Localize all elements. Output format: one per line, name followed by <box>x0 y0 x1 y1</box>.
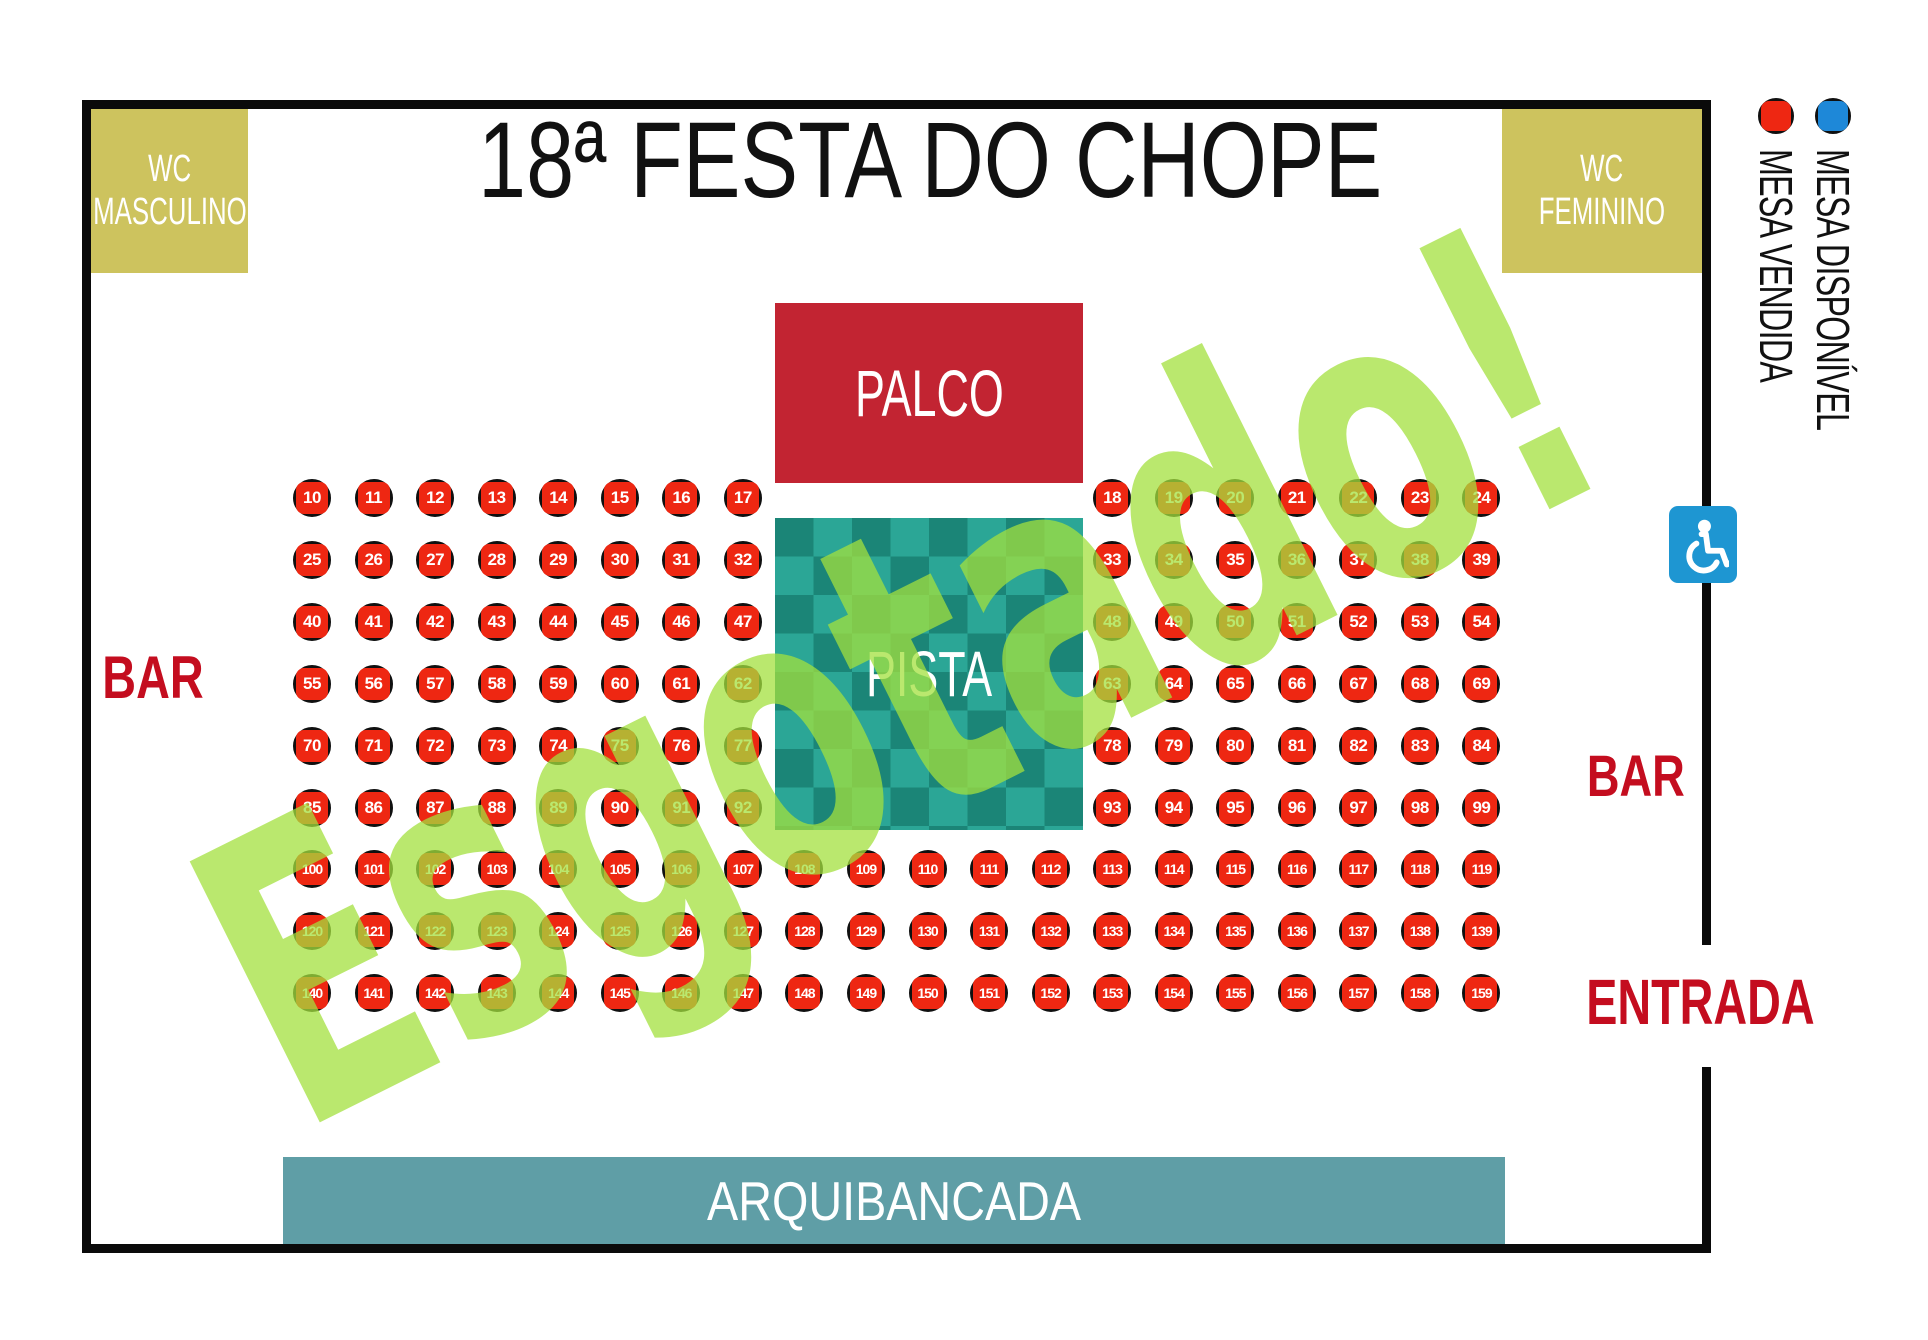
table-seat[interactable]: 132 <box>1031 911 1071 951</box>
table-seat[interactable]: 154 <box>1154 973 1194 1013</box>
table-seat[interactable]: 44 <box>538 602 578 642</box>
table-seat[interactable]: 102 <box>415 849 455 889</box>
table-seat[interactable]: 50 <box>1215 602 1255 642</box>
table-top: 70 <box>296 730 328 762</box>
table-seat[interactable]: 15 <box>600 478 640 518</box>
table-top: 99 <box>1465 792 1497 824</box>
table-top: 112 <box>1035 853 1067 885</box>
table-seat[interactable]: 87 <box>415 788 455 828</box>
wc-feminino-area: WC FEMININO <box>1502 109 1702 273</box>
table-seat[interactable]: 130 <box>908 911 948 951</box>
table-seat[interactable]: 74 <box>538 726 578 766</box>
table-top: 147 <box>727 977 759 1009</box>
table-seat[interactable]: 73 <box>477 726 517 766</box>
table-top <box>1761 101 1791 131</box>
wc-label: WC <box>148 148 191 191</box>
table-top: 71 <box>358 730 390 762</box>
table-seat[interactable]: 31 <box>661 540 701 580</box>
table-top: 145 <box>604 977 636 1009</box>
table-seat[interactable]: 14 <box>538 478 578 518</box>
table-top: 39 <box>1465 544 1497 576</box>
table-seat[interactable]: 54 <box>1461 602 1501 642</box>
table-top: 33 <box>1096 544 1128 576</box>
table-seat[interactable]: 126 <box>661 911 701 951</box>
table-top: 156 <box>1281 977 1313 1009</box>
table-top: 59 <box>542 668 574 700</box>
table-seat[interactable]: 109 <box>846 849 886 889</box>
table-top: 92 <box>727 792 759 824</box>
table-seat[interactable]: 64 <box>1154 664 1194 704</box>
table-top: 117 <box>1342 853 1374 885</box>
table-seat[interactable]: 149 <box>846 973 886 1013</box>
palco-stage-area: PALCO <box>775 303 1083 483</box>
table-seat[interactable]: 112 <box>1031 849 1071 889</box>
table-top: 135 <box>1219 915 1251 947</box>
table-top: 29 <box>542 544 574 576</box>
wc-feminino-label: FEMININO <box>1539 191 1665 234</box>
table-top: 157 <box>1342 977 1374 1009</box>
table-top: 72 <box>419 730 451 762</box>
table-seat[interactable]: 78 <box>1092 726 1132 766</box>
table-top: 37 <box>1342 544 1374 576</box>
table-seat[interactable]: 121 <box>354 911 394 951</box>
table-seat[interactable]: 46 <box>661 602 701 642</box>
table-top: 87 <box>419 792 451 824</box>
table-seat[interactable]: 155 <box>1215 973 1255 1013</box>
table-seat[interactable]: 61 <box>661 664 701 704</box>
table-top: 20 <box>1219 482 1251 514</box>
table-top: 83 <box>1404 730 1436 762</box>
table-seat[interactable]: 133 <box>1092 911 1132 951</box>
table-seat[interactable]: 158 <box>1400 973 1440 1013</box>
table-seat[interactable]: 25 <box>292 540 332 580</box>
table-seat[interactable]: 63 <box>1092 664 1132 704</box>
table-top: 53 <box>1404 606 1436 638</box>
table-seat[interactable]: 72 <box>415 726 455 766</box>
table-seat[interactable]: 10 <box>292 478 332 518</box>
table-top: 158 <box>1404 977 1436 1009</box>
table-seat[interactable]: 84 <box>1461 726 1501 766</box>
table-top: 24 <box>1465 482 1497 514</box>
table-seat[interactable]: 77 <box>723 726 763 766</box>
table-seat[interactable]: 105 <box>600 849 640 889</box>
palco-label: PALCO <box>855 355 1004 431</box>
table-seat[interactable]: 35 <box>1215 540 1255 580</box>
table-seat[interactable]: 16 <box>661 478 701 518</box>
table-top: 43 <box>481 606 513 638</box>
table-top: 148 <box>788 977 820 1009</box>
table-seat[interactable]: 95 <box>1215 788 1255 828</box>
table-top: 15 <box>604 482 636 514</box>
table-top: 12 <box>419 482 451 514</box>
table-seat[interactable]: 57 <box>415 664 455 704</box>
table-top: 118 <box>1404 853 1436 885</box>
table-seat[interactable]: 157 <box>1338 973 1378 1013</box>
pista-label: PISTA <box>866 637 992 711</box>
table-seat[interactable]: 146 <box>661 973 701 1013</box>
table-seat[interactable]: 140 <box>292 973 332 1013</box>
table-seat[interactable]: 103 <box>477 849 517 889</box>
table-top: 52 <box>1342 606 1374 638</box>
table-seat[interactable]: 30 <box>600 540 640 580</box>
table-seat[interactable]: 120 <box>292 911 332 951</box>
table-top: 144 <box>542 977 574 1009</box>
table-top: 65 <box>1219 668 1251 700</box>
table-seat[interactable]: 80 <box>1215 726 1255 766</box>
table-seat[interactable]: 110 <box>908 849 948 889</box>
entrada-entrance-label: ENTRADA <box>1578 970 1823 1034</box>
table-seat[interactable]: 28 <box>477 540 517 580</box>
table-top: 75 <box>604 730 636 762</box>
table-top: 74 <box>542 730 574 762</box>
table-top: 64 <box>1158 668 1190 700</box>
wheelchair-accessible-icon <box>1669 506 1737 583</box>
table-top: 108 <box>788 853 820 885</box>
wc-label: WC <box>1580 148 1623 191</box>
table-seat[interactable]: 29 <box>538 540 578 580</box>
table-seat[interactable]: 41 <box>354 602 394 642</box>
table-seat[interactable]: 38 <box>1400 540 1440 580</box>
table-top: 40 <box>296 606 328 638</box>
table-seat[interactable]: 76 <box>661 726 701 766</box>
table-seat[interactable]: 83 <box>1400 726 1440 766</box>
table-seat[interactable]: 125 <box>600 911 640 951</box>
table-top: 125 <box>604 915 636 947</box>
table-seat[interactable]: 99 <box>1461 788 1501 828</box>
table-seat[interactable]: 36 <box>1277 540 1317 580</box>
table-top: 48 <box>1096 606 1128 638</box>
table-top: 47 <box>727 606 759 638</box>
table-top: 61 <box>665 668 697 700</box>
table-seat[interactable]: 68 <box>1400 664 1440 704</box>
table-top: 10 <box>296 482 328 514</box>
table-top: 57 <box>419 668 451 700</box>
table-seat[interactable]: 89 <box>538 788 578 828</box>
table-top: 60 <box>604 668 636 700</box>
table-top: 77 <box>727 730 759 762</box>
table-seat[interactable]: 66 <box>1277 664 1317 704</box>
table-top: 49 <box>1158 606 1190 638</box>
table-top: 136 <box>1281 915 1313 947</box>
table-seat[interactable]: 98 <box>1400 788 1440 828</box>
table-top: 131 <box>973 915 1005 947</box>
table-seat[interactable]: 111 <box>969 849 1009 889</box>
table-seat[interactable]: 34 <box>1154 540 1194 580</box>
table-seat[interactable]: 26 <box>354 540 394 580</box>
table-top: 42 <box>419 606 451 638</box>
table-seat[interactable]: 92 <box>723 788 763 828</box>
table-top: 22 <box>1342 482 1374 514</box>
table-seat[interactable]: 24 <box>1461 478 1501 518</box>
table-seat[interactable]: 156 <box>1277 973 1317 1013</box>
table-top: 25 <box>296 544 328 576</box>
table-seat[interactable]: 12 <box>415 478 455 518</box>
table-seat[interactable]: 151 <box>969 973 1009 1013</box>
table-seat[interactable]: 55 <box>292 664 332 704</box>
table-seat[interactable]: 131 <box>969 911 1009 951</box>
table-seat[interactable]: 91 <box>661 788 701 828</box>
table-top: 23 <box>1404 482 1436 514</box>
table-seat[interactable]: 145 <box>600 973 640 1013</box>
table-seat[interactable]: 27 <box>415 540 455 580</box>
table-seat[interactable]: 147 <box>723 973 763 1013</box>
table-seat[interactable]: 113 <box>1092 849 1132 889</box>
table-seat[interactable]: 128 <box>784 911 824 951</box>
table-seat[interactable]: 142 <box>415 973 455 1013</box>
table-top: 102 <box>419 853 451 885</box>
table-seat[interactable]: 90 <box>600 788 640 828</box>
table-top: 101 <box>358 853 390 885</box>
table-top: 159 <box>1465 977 1497 1009</box>
table-top: 28 <box>481 544 513 576</box>
page-title: 18ª FESTA DO CHOPE <box>130 106 1730 214</box>
table-seat[interactable]: 13 <box>477 478 517 518</box>
table-top: 139 <box>1465 915 1497 947</box>
table-seat[interactable]: 20 <box>1215 478 1255 518</box>
table-top: 93 <box>1096 792 1128 824</box>
table-seat[interactable]: 37 <box>1338 540 1378 580</box>
table-seat[interactable]: 116 <box>1277 849 1317 889</box>
table-seat[interactable]: 159 <box>1461 973 1501 1013</box>
table-seat[interactable]: 108 <box>784 849 824 889</box>
table-seat[interactable]: 49 <box>1154 602 1194 642</box>
table-seat[interactable]: 117 <box>1338 849 1378 889</box>
table-top: 69 <box>1465 668 1497 700</box>
table-seat[interactable]: 18 <box>1092 478 1132 518</box>
table-seat[interactable]: 56 <box>354 664 394 704</box>
table-seat[interactable]: 81 <box>1277 726 1317 766</box>
arquibancada-bleachers-area: ARQUIBANCADA <box>283 1157 1505 1244</box>
table-seat[interactable]: 85 <box>292 788 332 828</box>
table-top: 150 <box>912 977 944 1009</box>
table-seat[interactable]: 75 <box>600 726 640 766</box>
table-top: 56 <box>358 668 390 700</box>
table-top: 21 <box>1281 482 1313 514</box>
table-top: 142 <box>419 977 451 1009</box>
table-top: 26 <box>358 544 390 576</box>
table-top: 41 <box>358 606 390 638</box>
table-top: 63 <box>1096 668 1128 700</box>
table-top: 127 <box>727 915 759 947</box>
table-top: 116 <box>1281 853 1313 885</box>
table-top: 132 <box>1035 915 1067 947</box>
table-top: 16 <box>665 482 697 514</box>
table-seat[interactable]: 53 <box>1400 602 1440 642</box>
legend-label: MESA VENDIDA <box>1753 149 1799 382</box>
table-top: 79 <box>1158 730 1190 762</box>
table-top: 109 <box>850 853 882 885</box>
table-seat[interactable]: 104 <box>538 849 578 889</box>
table-seat[interactable]: 59 <box>538 664 578 704</box>
table-top: 124 <box>542 915 574 947</box>
table-seat[interactable]: 22 <box>1338 478 1378 518</box>
table-top: 84 <box>1465 730 1497 762</box>
table-top: 34 <box>1158 544 1190 576</box>
table-seat[interactable]: 70 <box>292 726 332 766</box>
wall-right-lower <box>1702 1067 1711 1253</box>
table-top: 143 <box>481 977 513 1009</box>
table-top: 146 <box>665 977 697 1009</box>
table-top: 104 <box>542 853 574 885</box>
sold-table-icon <box>1757 97 1795 135</box>
table-top: 128 <box>788 915 820 947</box>
table-top: 111 <box>973 853 1005 885</box>
table-seat[interactable]: 62 <box>723 664 763 704</box>
table-seat[interactable]: 93 <box>1092 788 1132 828</box>
table-seat[interactable]: 144 <box>538 973 578 1013</box>
venue-map: 18ª FESTA DO CHOPE WC MASCULINO WC FEMIN… <box>0 0 1928 1340</box>
table-seat[interactable]: 138 <box>1400 911 1440 951</box>
table-seat[interactable]: 32 <box>723 540 763 580</box>
table-seat[interactable]: 79 <box>1154 726 1194 766</box>
table-seat[interactable]: 82 <box>1338 726 1378 766</box>
table-seat[interactable]: 97 <box>1338 788 1378 828</box>
table-top: 17 <box>727 482 759 514</box>
table-seat[interactable]: 141 <box>354 973 394 1013</box>
table-seat[interactable]: 88 <box>477 788 517 828</box>
table-seat[interactable]: 86 <box>354 788 394 828</box>
table-seat[interactable]: 129 <box>846 911 886 951</box>
table-top: 149 <box>850 977 882 1009</box>
table-top: 96 <box>1281 792 1313 824</box>
table-seat[interactable]: 69 <box>1461 664 1501 704</box>
table-seat[interactable]: 100 <box>292 849 332 889</box>
arquibancada-label: ARQUIBANCADA <box>707 1169 1081 1233</box>
table-seat[interactable]: 122 <box>415 911 455 951</box>
table-seat[interactable]: 124 <box>538 911 578 951</box>
table-top: 76 <box>665 730 697 762</box>
table-top: 110 <box>912 853 944 885</box>
table-seat[interactable]: 127 <box>723 911 763 951</box>
table-top: 113 <box>1096 853 1128 885</box>
table-seat[interactable]: 114 <box>1154 849 1194 889</box>
table-top: 54 <box>1465 606 1497 638</box>
table-top: 35 <box>1219 544 1251 576</box>
legend-item-mesa-vendida: MESA VENDIDA <box>1754 97 1798 482</box>
table-top: 82 <box>1342 730 1374 762</box>
table-seat[interactable]: 101 <box>354 849 394 889</box>
table-top: 103 <box>481 853 513 885</box>
table-seat[interactable]: 137 <box>1338 911 1378 951</box>
table-top: 119 <box>1465 853 1497 885</box>
table-top: 46 <box>665 606 697 638</box>
table-seat[interactable]: 134 <box>1154 911 1194 951</box>
table-seat[interactable]: 107 <box>723 849 763 889</box>
table-top: 133 <box>1096 915 1128 947</box>
table-top: 140 <box>296 977 328 1009</box>
table-seat[interactable]: 153 <box>1092 973 1132 1013</box>
table-top: 80 <box>1219 730 1251 762</box>
table-seat[interactable]: 94 <box>1154 788 1194 828</box>
table-top: 97 <box>1342 792 1374 824</box>
table-seat[interactable]: 52 <box>1338 602 1378 642</box>
table-top: 19 <box>1158 482 1190 514</box>
table-seat[interactable]: 150 <box>908 973 948 1013</box>
table-seat[interactable]: 21 <box>1277 478 1317 518</box>
table-top: 85 <box>296 792 328 824</box>
table-seat[interactable]: 48 <box>1092 602 1132 642</box>
table-top: 121 <box>358 915 390 947</box>
table-top: 51 <box>1281 606 1313 638</box>
table-top: 98 <box>1404 792 1436 824</box>
table-seat[interactable]: 40 <box>292 602 332 642</box>
table-seat[interactable]: 123 <box>477 911 517 951</box>
table-seat[interactable]: 135 <box>1215 911 1255 951</box>
table-top: 130 <box>912 915 944 947</box>
table-seat[interactable]: 11 <box>354 478 394 518</box>
table-top: 138 <box>1404 915 1436 947</box>
table-seat[interactable]: 17 <box>723 478 763 518</box>
table-seat[interactable]: 96 <box>1277 788 1317 828</box>
table-seat[interactable]: 60 <box>600 664 640 704</box>
table-top: 66 <box>1281 668 1313 700</box>
table-top: 88 <box>481 792 513 824</box>
table-seat[interactable]: 43 <box>477 602 517 642</box>
table-top: 154 <box>1158 977 1190 1009</box>
table-seat[interactable]: 51 <box>1277 602 1317 642</box>
table-seat[interactable]: 65 <box>1215 664 1255 704</box>
table-seat[interactable]: 106 <box>661 849 701 889</box>
table-seat[interactable]: 152 <box>1031 973 1071 1013</box>
table-top: 32 <box>727 544 759 576</box>
table-top: 86 <box>358 792 390 824</box>
table-seat[interactable]: 39 <box>1461 540 1501 580</box>
table-seat[interactable]: 118 <box>1400 849 1440 889</box>
table-seat[interactable]: 33 <box>1092 540 1132 580</box>
table-seat[interactable]: 47 <box>723 602 763 642</box>
table-seat[interactable]: 136 <box>1277 911 1317 951</box>
table-top: 78 <box>1096 730 1128 762</box>
table-seat[interactable]: 143 <box>477 973 517 1013</box>
table-seat[interactable]: 23 <box>1400 478 1440 518</box>
table-top: 123 <box>481 915 513 947</box>
table-top: 122 <box>419 915 451 947</box>
table-top: 13 <box>481 482 513 514</box>
table-top: 106 <box>665 853 697 885</box>
table-top: 68 <box>1404 668 1436 700</box>
table-top: 30 <box>604 544 636 576</box>
table-seat[interactable]: 45 <box>600 602 640 642</box>
table-top: 31 <box>665 544 697 576</box>
available-table-icon <box>1814 97 1852 135</box>
table-top: 94 <box>1158 792 1190 824</box>
table-top: 38 <box>1404 544 1436 576</box>
table-seat[interactable]: 58 <box>477 664 517 704</box>
table-seat[interactable]: 67 <box>1338 664 1378 704</box>
table-top: 58 <box>481 668 513 700</box>
table-seat[interactable]: 71 <box>354 726 394 766</box>
table-top: 115 <box>1219 853 1251 885</box>
table-top <box>1818 101 1848 131</box>
legend-label: MESA DISPONÍVEL <box>1810 149 1856 430</box>
table-top: 91 <box>665 792 697 824</box>
table-top: 67 <box>1342 668 1374 700</box>
table-seat[interactable]: 148 <box>784 973 824 1013</box>
table-top: 50 <box>1219 606 1251 638</box>
table-seat[interactable]: 19 <box>1154 478 1194 518</box>
table-seat[interactable]: 115 <box>1215 849 1255 889</box>
table-top: 141 <box>358 977 390 1009</box>
table-seat[interactable]: 42 <box>415 602 455 642</box>
table-top: 55 <box>296 668 328 700</box>
table-seat[interactable]: 119 <box>1461 849 1501 889</box>
pista-dancefloor-area: PISTA <box>775 518 1083 830</box>
table-top: 151 <box>973 977 1005 1009</box>
table-seat[interactable]: 139 <box>1461 911 1501 951</box>
table-top: 105 <box>604 853 636 885</box>
table-top: 137 <box>1342 915 1374 947</box>
table-top: 126 <box>665 915 697 947</box>
